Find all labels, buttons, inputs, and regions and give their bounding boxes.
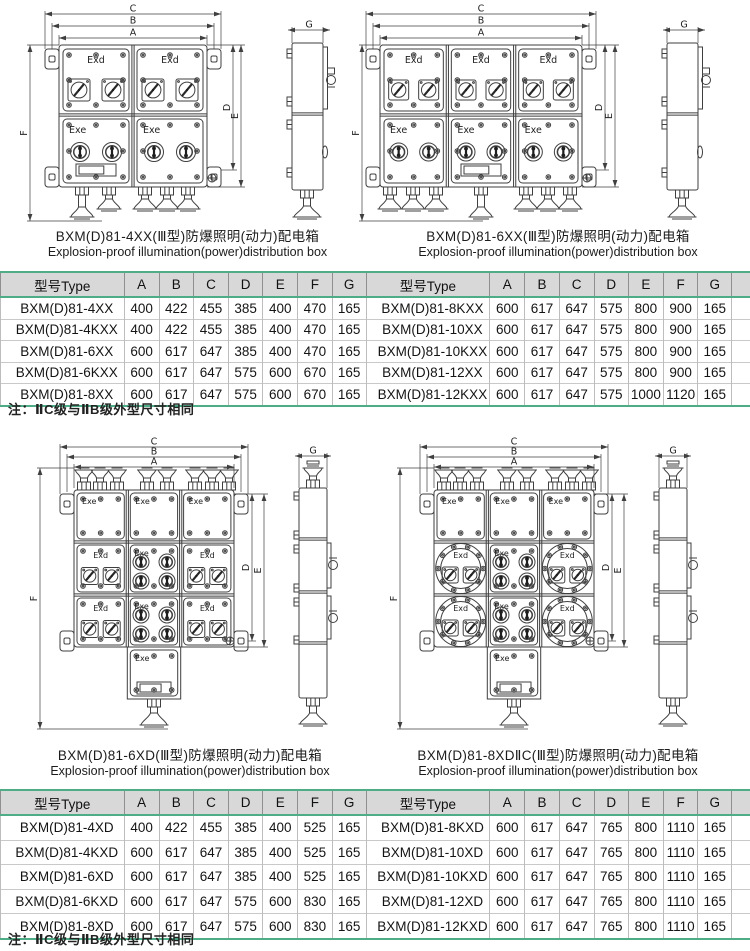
dim-cell: 765	[594, 865, 628, 890]
dim-cell: 1110	[664, 815, 698, 840]
dim-cell: 600	[490, 341, 525, 363]
dim-cell: 800	[628, 840, 663, 865]
dim-cell: 647	[559, 865, 594, 890]
dim-cell: 400	[124, 815, 159, 840]
figure-4xx-caption: BXM(D)81-4XX(Ⅲ型)防爆照明(动力)配电箱 Explosion-pr…	[20, 229, 355, 260]
dim-label: F	[29, 596, 40, 601]
caption-cn: BXM(D)81-6XD(Ⅲ型)防爆照明(动力)配电箱	[20, 748, 360, 764]
column-header: G	[698, 272, 732, 297]
dim-cell: 400	[263, 341, 298, 363]
model-cell: BXM(D)81-4KXX	[1, 319, 125, 341]
dim-cell: 1110	[664, 889, 698, 914]
dim-cell: 525	[298, 865, 332, 890]
dim-label: D	[241, 564, 252, 571]
dim-cell: 600	[124, 840, 159, 865]
dim-cell: 575	[229, 914, 263, 939]
dim-cell: 165	[332, 914, 366, 939]
dim-label: E	[613, 567, 624, 573]
exe-label: Exe	[442, 497, 457, 506]
column-header: B	[525, 272, 559, 297]
column-header: D	[229, 790, 263, 815]
dim-cell: 400	[263, 297, 298, 319]
dim-cell: 470	[298, 319, 332, 341]
dim-cell: 400	[263, 840, 298, 865]
dim-cell: 617	[525, 297, 559, 319]
exd-label: Exd	[93, 604, 108, 613]
dim-cell: 600	[124, 889, 159, 914]
dim-cell: 400	[263, 865, 298, 890]
dim-cell: 765	[594, 914, 628, 939]
figure-8xd-drawing: ExeExeExeExdExdExeExdExdExeExeCBAFDEG	[388, 437, 746, 747]
dim-cell: 647	[559, 889, 594, 914]
dim-cell: 165	[698, 840, 732, 865]
caption-cn: BXM(D)81-4XX(Ⅲ型)防爆照明(动力)配电箱	[20, 229, 355, 245]
exe-label: Exe	[525, 125, 542, 136]
dim-cell: 765	[594, 840, 628, 865]
exe-label: Exe	[457, 125, 474, 136]
dim-cell: 647	[193, 914, 228, 939]
column-header: C	[559, 790, 594, 815]
model-cell: BXM(D)81-6KXX	[1, 362, 125, 384]
column-header: F	[664, 272, 698, 297]
dim-cell: 765	[594, 889, 628, 914]
filler-cell	[732, 865, 750, 890]
table-row: BXM(D)81-4XX400422455385400470165BXM(D)8…	[1, 297, 750, 319]
caption-en: Explosion-proof illumination(power)distr…	[20, 764, 360, 779]
dim-cell: 647	[193, 362, 228, 384]
exe-label: Exe	[135, 497, 150, 506]
model-cell: BXM(D)81-10KXD	[366, 865, 490, 890]
exd-label: Exd	[405, 55, 423, 66]
dim-label: F	[20, 130, 30, 135]
dim-cell: 617	[159, 840, 193, 865]
dim-cell: 385	[229, 341, 263, 363]
filler-cell	[732, 889, 750, 914]
dim-cell: 1000	[628, 384, 663, 406]
dim-cell: 617	[525, 889, 559, 914]
caption-en: Explosion-proof illumination(power)distr…	[378, 764, 738, 779]
header-filler	[732, 790, 750, 815]
model-cell: BXM(D)81-10XX	[366, 319, 490, 341]
exd-label: Exd	[161, 55, 179, 66]
column-header: E	[263, 272, 298, 297]
dim-cell: 165	[698, 914, 732, 939]
dim-cell: 165	[698, 384, 732, 406]
dim-cell: 617	[525, 815, 559, 840]
dim-cell: 617	[525, 384, 559, 406]
exd-label: Exd	[453, 551, 468, 560]
dim-label: E	[604, 113, 615, 119]
dim-label: B	[478, 16, 485, 27]
dim-cell: 1120	[664, 384, 698, 406]
dim-cell: 165	[332, 840, 366, 865]
catalog-page: { "drawing_labels": { "exd": "Exd", "exe…	[0, 0, 750, 951]
dim-cell: 600	[263, 362, 298, 384]
model-cell: BXM(D)81-12KXD	[366, 914, 490, 939]
filler-cell	[732, 914, 750, 939]
dim-cell: 1110	[664, 914, 698, 939]
column-header: B	[159, 790, 193, 815]
dim-cell: 800	[628, 341, 663, 363]
figure-4xx-drawing: ExdExeExdExeCBAFDEG	[20, 2, 365, 230]
exe-label: Exe	[135, 654, 150, 663]
filler-cell	[732, 362, 750, 384]
dim-cell: 765	[594, 815, 628, 840]
table-row: BXM(D)81-6KXD600617647575600830165BXM(D)…	[1, 889, 750, 914]
dim-cell: 647	[559, 362, 594, 384]
dim-cell: 617	[159, 865, 193, 890]
column-header: G	[332, 272, 366, 297]
exd-label: Exd	[472, 55, 490, 66]
exe-label: Exe	[495, 654, 510, 663]
column-header: D	[229, 272, 263, 297]
dim-cell: 600	[490, 319, 525, 341]
dim-cell: 385	[229, 319, 263, 341]
dim-label: A	[511, 457, 518, 468]
table-row: BXM(D)81-6XX600617647385400470165BXM(D)8…	[1, 341, 750, 363]
dim-cell: 400	[263, 815, 298, 840]
dim-cell: 647	[559, 297, 594, 319]
dim-label: F	[352, 130, 362, 135]
dim-cell: 165	[698, 341, 732, 363]
dim-label: F	[389, 596, 400, 601]
column-header: 型号Type	[1, 272, 125, 297]
note-1: 注：ⅡC级与ⅡB级外型尺寸相同	[8, 399, 194, 418]
caption-cn: BXM(D)81-8XDⅡC(Ⅲ型)防爆照明(动力)配电箱	[378, 748, 738, 764]
dim-cell: 900	[664, 362, 698, 384]
dim-cell: 647	[559, 384, 594, 406]
dim-label: G	[680, 20, 687, 31]
figure-8xd-caption: BXM(D)81-8XDⅡC(Ⅲ型)防爆照明(动力)配电箱 Explosion-…	[378, 748, 738, 779]
column-header: F	[298, 272, 332, 297]
dim-cell: 617	[159, 341, 193, 363]
dim-cell: 670	[298, 384, 332, 406]
column-header: 型号Type	[366, 272, 490, 297]
column-header: E	[628, 272, 663, 297]
exd-label: Exd	[560, 551, 575, 560]
model-cell: BXM(D)81-12XD	[366, 889, 490, 914]
header-filler	[732, 272, 750, 297]
model-cell: BXM(D)81-10XD	[366, 840, 490, 865]
model-cell: BXM(D)81-12XX	[366, 362, 490, 384]
dim-cell: 900	[664, 297, 698, 319]
dim-cell: 647	[193, 840, 228, 865]
dim-cell: 575	[594, 362, 628, 384]
dim-cell: 455	[193, 297, 228, 319]
column-header: D	[594, 272, 628, 297]
dim-cell: 800	[628, 297, 663, 319]
figure-6xd-drawing: ExeExeExeExdExdExeExdExdExeExeCBAFDEG	[28, 437, 390, 747]
dim-cell: 165	[332, 889, 366, 914]
header-row: 型号TypeABCDEFG型号TypeABCDEFG	[1, 790, 750, 815]
dim-cell: 647	[559, 840, 594, 865]
dim-label: G	[669, 446, 676, 457]
dim-cell: 600	[490, 840, 525, 865]
column-header: G	[332, 790, 366, 815]
dim-cell: 600	[124, 341, 159, 363]
exd-label: Exd	[560, 604, 575, 613]
dim-cell: 647	[193, 865, 228, 890]
dim-cell: 455	[193, 319, 228, 341]
dim-cell: 617	[525, 865, 559, 890]
exe-label: Exe	[82, 497, 97, 506]
dim-cell: 617	[525, 914, 559, 939]
table-row: BXM(D)81-6XD600617647385400525165BXM(D)8…	[1, 865, 750, 890]
column-header: E	[628, 790, 663, 815]
dim-cell: 165	[332, 865, 366, 890]
column-header: C	[559, 272, 594, 297]
dim-cell: 830	[298, 914, 332, 939]
dim-cell: 575	[594, 341, 628, 363]
model-cell: BXM(D)81-4XX	[1, 297, 125, 319]
exd-label: Exd	[87, 55, 105, 66]
dim-cell: 385	[229, 297, 263, 319]
exd-label: Exd	[540, 55, 558, 66]
exe-label: Exe	[390, 125, 407, 136]
table-row: BXM(D)81-4XD400422455385400525165BXM(D)8…	[1, 815, 750, 840]
model-cell: BXM(D)81-6XD	[1, 865, 125, 890]
dim-cell: 422	[159, 319, 193, 341]
note-2: 注：ⅡC级与ⅡB级外型尺寸相同	[8, 929, 194, 948]
filler-cell	[732, 297, 750, 319]
dim-cell: 600	[263, 889, 298, 914]
model-cell: BXM(D)81-6KXD	[1, 889, 125, 914]
dim-cell: 600	[490, 914, 525, 939]
column-header: F	[664, 790, 698, 815]
dim-cell: 600	[490, 384, 525, 406]
column-header: G	[698, 790, 732, 815]
column-header: B	[159, 272, 193, 297]
dim-cell: 525	[298, 840, 332, 865]
dim-cell: 1110	[664, 840, 698, 865]
dim-cell: 400	[124, 319, 159, 341]
table-row: BXM(D)81-6KXX600617647575600670165BXM(D)…	[1, 362, 750, 384]
dim-cell: 165	[698, 297, 732, 319]
exd-label: Exd	[453, 604, 468, 613]
dim-label: E	[253, 567, 264, 573]
dim-cell: 647	[559, 341, 594, 363]
dim-cell: 575	[594, 297, 628, 319]
dim-cell: 165	[698, 362, 732, 384]
dim-label: B	[130, 16, 137, 27]
column-header: C	[193, 790, 228, 815]
model-cell: BXM(D)81-8KXX	[366, 297, 490, 319]
dim-label: G	[305, 20, 312, 31]
dim-cell: 800	[628, 815, 663, 840]
dim-cell: 647	[193, 341, 228, 363]
dim-cell: 600	[490, 889, 525, 914]
dim-cell: 647	[193, 889, 228, 914]
column-header: F	[298, 790, 332, 815]
model-cell: BXM(D)81-12KXX	[366, 384, 490, 406]
dim-cell: 617	[525, 341, 559, 363]
caption-cn: BXM(D)81-6XX(Ⅲ型)防爆照明(动力)配电箱	[378, 229, 738, 245]
dim-cell: 400	[263, 319, 298, 341]
column-header: A	[124, 272, 159, 297]
header-row: 型号TypeABCDEFG型号TypeABCDEFG	[1, 272, 750, 297]
exd-label: Exd	[200, 551, 215, 560]
exe-label: Exe	[69, 125, 86, 136]
dim-cell: 575	[229, 384, 263, 406]
dim-cell: 470	[298, 297, 332, 319]
caption-en: Explosion-proof illumination(power)distr…	[20, 245, 355, 260]
dim-cell: 165	[698, 889, 732, 914]
dim-cell: 525	[298, 815, 332, 840]
dim-cell: 600	[490, 297, 525, 319]
dim-label: C	[130, 4, 137, 15]
figure-6xd-caption: BXM(D)81-6XD(Ⅲ型)防爆照明(动力)配电箱 Explosion-pr…	[20, 748, 360, 779]
dim-cell: 800	[628, 889, 663, 914]
dim-cell: 647	[559, 815, 594, 840]
dim-cell: 600	[263, 384, 298, 406]
dim-cell: 900	[664, 319, 698, 341]
dim-label: A	[478, 28, 485, 39]
filler-cell	[732, 341, 750, 363]
dim-cell: 165	[332, 362, 366, 384]
caption-en: Explosion-proof illumination(power)distr…	[378, 245, 738, 260]
dim-cell: 647	[559, 914, 594, 939]
dim-cell: 575	[229, 889, 263, 914]
dim-cell: 385	[229, 840, 263, 865]
filler-cell	[732, 384, 750, 406]
dim-cell: 165	[332, 384, 366, 406]
dim-cell: 600	[490, 865, 525, 890]
column-header: A	[490, 272, 525, 297]
dim-cell: 1110	[664, 865, 698, 890]
dim-cell: 647	[559, 319, 594, 341]
dim-cell: 800	[628, 914, 663, 939]
dim-label: C	[478, 4, 485, 15]
column-header: A	[490, 790, 525, 815]
filler-cell	[732, 840, 750, 865]
dimension-table-xd: 型号TypeABCDEFG型号TypeABCDEFGBXM(D)81-4XD40…	[0, 789, 750, 940]
model-cell: BXM(D)81-8KXD	[366, 815, 490, 840]
dim-cell: 165	[332, 297, 366, 319]
dimension-table-xx: 型号TypeABCDEFG型号TypeABCDEFGBXM(D)81-4XX40…	[0, 271, 750, 407]
dim-cell: 647	[193, 384, 228, 406]
dim-cell: 670	[298, 362, 332, 384]
dim-label: G	[309, 446, 316, 457]
model-cell: BXM(D)81-10KXX	[366, 341, 490, 363]
dim-label: E	[230, 113, 241, 119]
figure-6xx-caption: BXM(D)81-6XX(Ⅲ型)防爆照明(动力)配电箱 Explosion-pr…	[378, 229, 738, 260]
dim-label: A	[151, 457, 158, 468]
column-header: E	[263, 790, 298, 815]
dim-cell: 800	[628, 319, 663, 341]
model-cell: BXM(D)81-6XX	[1, 341, 125, 363]
dim-cell: 617	[159, 362, 193, 384]
column-header: 型号Type	[366, 790, 490, 815]
dim-cell: 617	[159, 889, 193, 914]
dim-cell: 617	[525, 319, 559, 341]
dim-label: D	[601, 564, 612, 571]
exd-label: Exd	[93, 551, 108, 560]
exe-label: Exe	[189, 497, 204, 506]
dim-cell: 600	[490, 815, 525, 840]
dim-cell: 165	[698, 815, 732, 840]
model-cell: BXM(D)81-4KXD	[1, 840, 125, 865]
dim-label: D	[594, 104, 605, 111]
dim-cell: 617	[525, 362, 559, 384]
column-header: C	[193, 272, 228, 297]
dim-cell: 165	[698, 319, 732, 341]
dim-cell: 165	[698, 865, 732, 890]
dim-cell: 455	[193, 815, 228, 840]
dim-cell: 385	[229, 815, 263, 840]
dim-label: A	[130, 28, 137, 39]
dim-cell: 165	[332, 341, 366, 363]
dim-cell: 900	[664, 341, 698, 363]
dim-cell: 600	[124, 865, 159, 890]
table-row: BXM(D)81-4KXD600617647385400525165BXM(D)…	[1, 840, 750, 865]
dim-cell: 385	[229, 865, 263, 890]
exe-label: Exe	[495, 497, 510, 506]
dim-cell: 165	[332, 319, 366, 341]
exd-label: Exd	[200, 604, 215, 613]
dim-cell: 617	[525, 840, 559, 865]
dim-cell: 830	[298, 889, 332, 914]
dim-label: D	[222, 104, 233, 111]
dim-cell: 575	[229, 362, 263, 384]
exe-label: Exe	[143, 125, 160, 136]
dim-cell: 575	[594, 319, 628, 341]
dim-cell: 470	[298, 341, 332, 363]
dim-cell: 800	[628, 362, 663, 384]
dim-cell: 422	[159, 815, 193, 840]
figure-6xx-drawing: ExdExeExdExeExdExeCBAFDEG	[352, 2, 748, 230]
column-header: D	[594, 790, 628, 815]
dim-cell: 600	[490, 362, 525, 384]
column-header: A	[124, 790, 159, 815]
table-row: BXM(D)81-4KXX400422455385400470165BXM(D)…	[1, 319, 750, 341]
dim-cell: 575	[594, 384, 628, 406]
dim-cell: 165	[332, 815, 366, 840]
dim-cell: 800	[628, 865, 663, 890]
column-header: 型号Type	[1, 790, 125, 815]
dim-cell: 600	[263, 914, 298, 939]
model-cell: BXM(D)81-4XD	[1, 815, 125, 840]
dim-cell: 400	[124, 297, 159, 319]
filler-cell	[732, 815, 750, 840]
dim-cell: 422	[159, 297, 193, 319]
dim-cell: 600	[124, 362, 159, 384]
column-header: B	[525, 790, 559, 815]
exe-label: Exe	[549, 497, 564, 506]
filler-cell	[732, 319, 750, 341]
